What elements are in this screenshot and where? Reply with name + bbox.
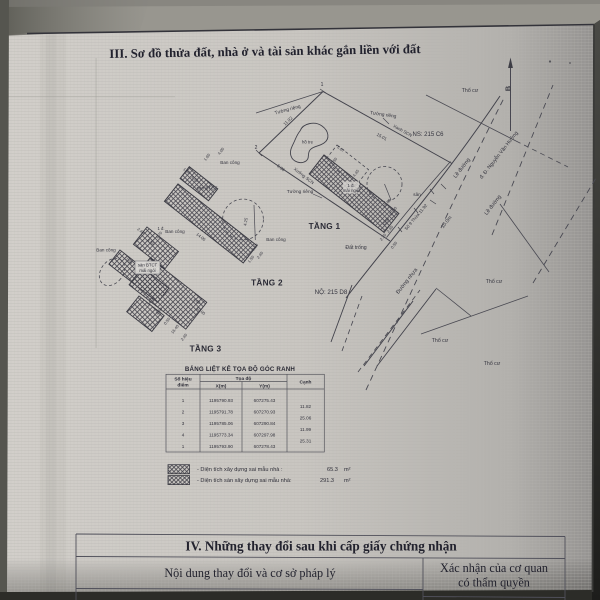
svg-text:Xác nhận của cơ quan: Xác nhận của cơ quan — [440, 561, 548, 575]
svg-text:- Diện tích xây dựng sai mẫu n: - Diện tích xây dựng sai mẫu nhà : — [197, 466, 283, 473]
svg-text:Tọa độ: Tọa độ — [236, 376, 252, 382]
svg-text:NỘ: 215 D8: NỘ: 215 D8 — [315, 289, 348, 296]
svg-text:1: 1 — [182, 444, 185, 449]
svg-text:TẦNG 2: TẦNG 2 — [251, 278, 283, 288]
svg-text:1195793.90: 1195793.90 — [209, 444, 233, 449]
svg-text:Thổ cư: Thổ cư — [432, 337, 449, 344]
svg-text:Nội dung thay đổi và cơ sở phá: Nội dung thay đổi và cơ sở pháp lý — [164, 566, 336, 580]
svg-text:TẦNG 3: TẦNG 3 — [190, 344, 222, 354]
svg-text:25.31: 25.31 — [300, 439, 312, 444]
svg-text:IV. Những thay đổi sau khi cấp: IV. Những thay đổi sau khi cấp giấy chứn… — [185, 539, 457, 554]
svg-text:1195773.34: 1195773.34 — [209, 433, 233, 438]
svg-text:1195790.93: 1195790.93 — [209, 398, 233, 403]
svg-text:có thẩm quyền: có thẩm quyền — [458, 576, 530, 590]
svg-text:1: 1 — [182, 398, 185, 403]
svg-text:B: B — [504, 85, 513, 91]
svg-text:3: 3 — [182, 421, 185, 426]
svg-text:điểm: điểm — [177, 382, 188, 389]
svg-text:sân: sân — [413, 192, 421, 197]
svg-text:1195785.06: 1195785.06 — [209, 421, 233, 426]
svg-text:Tường riêng: Tường riêng — [287, 189, 314, 195]
svg-text:Đất trống: Đất trống — [345, 245, 366, 251]
svg-text:hồ tre: hồ tre — [302, 140, 314, 145]
svg-text:TẦNG 1: TẦNG 1 — [309, 221, 341, 231]
svg-text:- Diện tích sàn xây dựng sai m: - Diện tích sàn xây dựng sai mẫu nhà: — [197, 477, 292, 484]
svg-text:4: 4 — [182, 433, 185, 438]
svg-text:Cạnh: Cạnh — [300, 379, 312, 385]
svg-text:Y(m): Y(m) — [259, 383, 270, 389]
svg-text:1195791.78: 1195791.78 — [209, 410, 233, 415]
svg-text:BẢNG LIỆT KÊ TỌA ĐỘ GÓC RANH: BẢNG LIỆT KÊ TỌA ĐỘ GÓC RANH — [185, 365, 296, 373]
svg-text:291.3: 291.3 — [320, 478, 334, 484]
svg-text:Thổ cư: Thổ cư — [486, 278, 503, 285]
svg-text:Số hiệu: Số hiệu — [174, 376, 191, 383]
svg-text:2: 2 — [182, 410, 185, 415]
svg-text:sàn BTCT: sàn BTCT — [138, 263, 158, 268]
svg-text:11.99: 11.99 — [300, 427, 312, 432]
svg-text:607297.98: 607297.98 — [254, 433, 276, 438]
svg-text:1: 1 — [321, 82, 324, 88]
svg-text:Thổ cư: Thổ cư — [462, 87, 479, 94]
svg-text:Ban công: Ban công — [165, 229, 185, 234]
svg-text:Ban công: Ban công — [96, 248, 116, 253]
svg-text:607275.43: 607275.43 — [254, 398, 276, 403]
svg-text:Ban công: Ban công — [266, 237, 286, 242]
svg-text:Thổ cư: Thổ cư — [484, 360, 501, 367]
svg-text:m²: m² — [344, 467, 351, 473]
svg-text:m²: m² — [344, 478, 351, 484]
svg-text:11.82: 11.82 — [300, 404, 312, 409]
svg-text:Ban công: Ban công — [220, 160, 240, 165]
svg-text:NS: 215 C6: NS: 215 C6 — [412, 132, 444, 138]
svg-text:607270.93: 607270.93 — [254, 410, 276, 415]
svg-text:607290.84: 607290.84 — [254, 421, 276, 426]
svg-text:25.06: 25.06 — [300, 416, 312, 421]
svg-text:X(m): X(m) — [216, 383, 227, 389]
svg-text:65.3: 65.3 — [327, 467, 338, 473]
svg-text:607278.43: 607278.43 — [254, 444, 276, 449]
svg-text:sàn BTCT: sàn BTCT — [197, 186, 218, 191]
svg-text:mái ngói: mái ngói — [139, 268, 155, 273]
